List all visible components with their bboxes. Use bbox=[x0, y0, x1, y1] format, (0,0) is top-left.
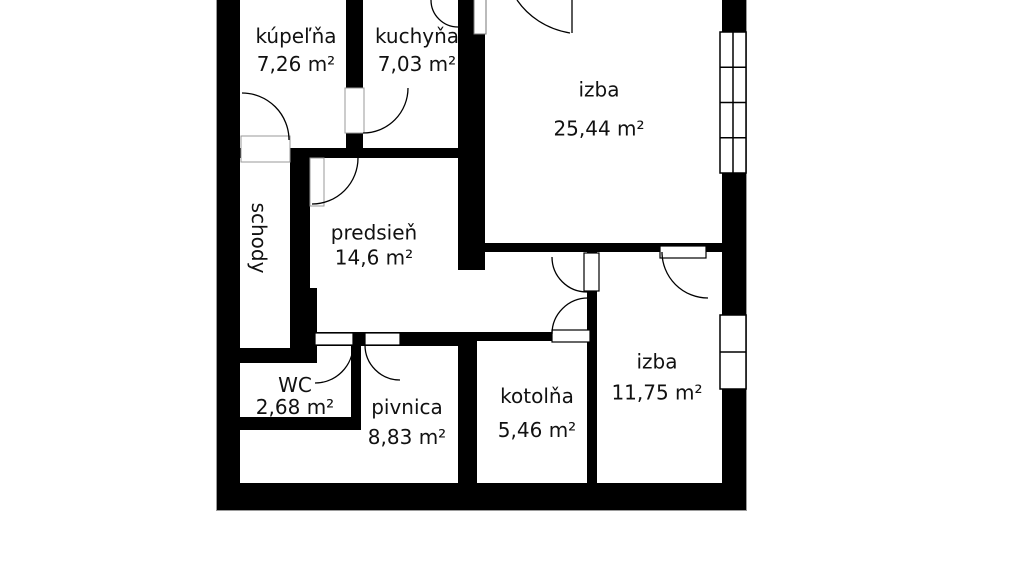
door-swing-arc bbox=[662, 252, 708, 298]
window-room11 bbox=[720, 315, 746, 389]
door-swing-arc bbox=[552, 257, 587, 292]
wall-wc-bottom bbox=[217, 417, 361, 430]
wall-kitchen-bottom bbox=[310, 148, 458, 158]
door-swing-arc bbox=[365, 345, 400, 380]
wall-bathroom-kitchen bbox=[346, 0, 363, 158]
door-leaf bbox=[552, 330, 590, 342]
door-swing-arc bbox=[242, 93, 289, 140]
wall-outer-left bbox=[217, 0, 240, 510]
wall-cellar-boiler bbox=[458, 332, 477, 483]
door-bathroom bbox=[241, 93, 290, 162]
door-cellar bbox=[365, 333, 400, 380]
door-room25-top bbox=[474, 0, 572, 34]
door-leaf bbox=[365, 333, 400, 345]
door-room11-top bbox=[660, 246, 708, 298]
door-swing-arc bbox=[315, 345, 353, 383]
door-leaf bbox=[660, 246, 706, 258]
door-swing-arc bbox=[517, 0, 570, 33]
floor-plan: kúpeľňa 7,26 m² kuchyňa 7,03 m² izba 25,… bbox=[0, 0, 1011, 570]
wall-stairs-hall-lower bbox=[290, 288, 317, 363]
floor-plan-drawing bbox=[0, 0, 1011, 570]
door-leaf bbox=[315, 333, 353, 345]
door-leaf bbox=[241, 136, 290, 162]
door-kitchen-top bbox=[431, 0, 458, 27]
door-leaf bbox=[474, 0, 486, 34]
wall-outer-bottom bbox=[217, 483, 746, 510]
door-swing-arc bbox=[363, 88, 408, 133]
door-bathroom-kitchen bbox=[345, 88, 408, 133]
wall-central-vertical bbox=[458, 0, 485, 270]
door-hall bbox=[310, 158, 358, 206]
window-room25 bbox=[720, 32, 746, 173]
wall-stairs-hall-upper bbox=[290, 150, 310, 293]
door-room11-side bbox=[552, 253, 599, 292]
door-boiler bbox=[552, 298, 590, 342]
door-leaf bbox=[584, 253, 599, 291]
door-swing-arc bbox=[431, 0, 458, 27]
door-swing-arc bbox=[552, 298, 588, 334]
door-leaf bbox=[310, 158, 324, 206]
door-wc bbox=[315, 333, 353, 383]
door-leaf bbox=[345, 88, 364, 133]
